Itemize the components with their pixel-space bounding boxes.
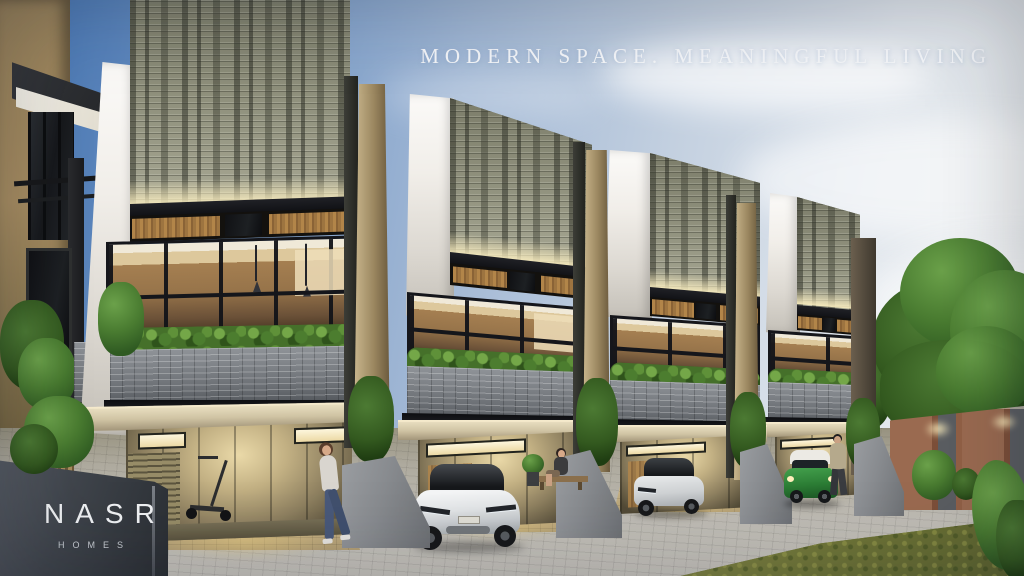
building-4-white-wall	[766, 193, 800, 335]
pendant-light	[305, 244, 307, 286]
pendant-light	[253, 281, 261, 292]
fin-vine	[348, 376, 394, 462]
car-plate	[458, 516, 480, 524]
building-3-white-wall	[605, 150, 652, 320]
wall-uplight	[918, 416, 958, 442]
potted-plant	[522, 454, 544, 492]
silver-hatchback	[634, 452, 706, 514]
fern-bush	[912, 450, 956, 500]
hero-tagline: MODERN SPACE. MEANINGFUL LIVING	[420, 44, 992, 69]
building-1-planter	[110, 346, 352, 404]
palm-plant	[996, 500, 1024, 576]
white-sedan	[414, 450, 522, 546]
brand-wordmark: NASR	[44, 498, 166, 530]
balcony-tree	[98, 282, 144, 356]
pendant-light	[255, 245, 257, 281]
wall-uplight	[984, 410, 1024, 434]
hero-render: MODERN SPACE. MEANINGFUL LIVING	[0, 0, 1024, 576]
car-intake	[446, 526, 490, 534]
car-wheel	[494, 525, 516, 547]
kick-scooter	[186, 456, 238, 520]
brand-sub-wordmark: HOMES	[58, 540, 131, 550]
sitting-woman	[546, 448, 576, 482]
building-2-white-wall	[406, 94, 454, 320]
walking-man	[826, 434, 850, 500]
corner-tree	[10, 424, 58, 474]
